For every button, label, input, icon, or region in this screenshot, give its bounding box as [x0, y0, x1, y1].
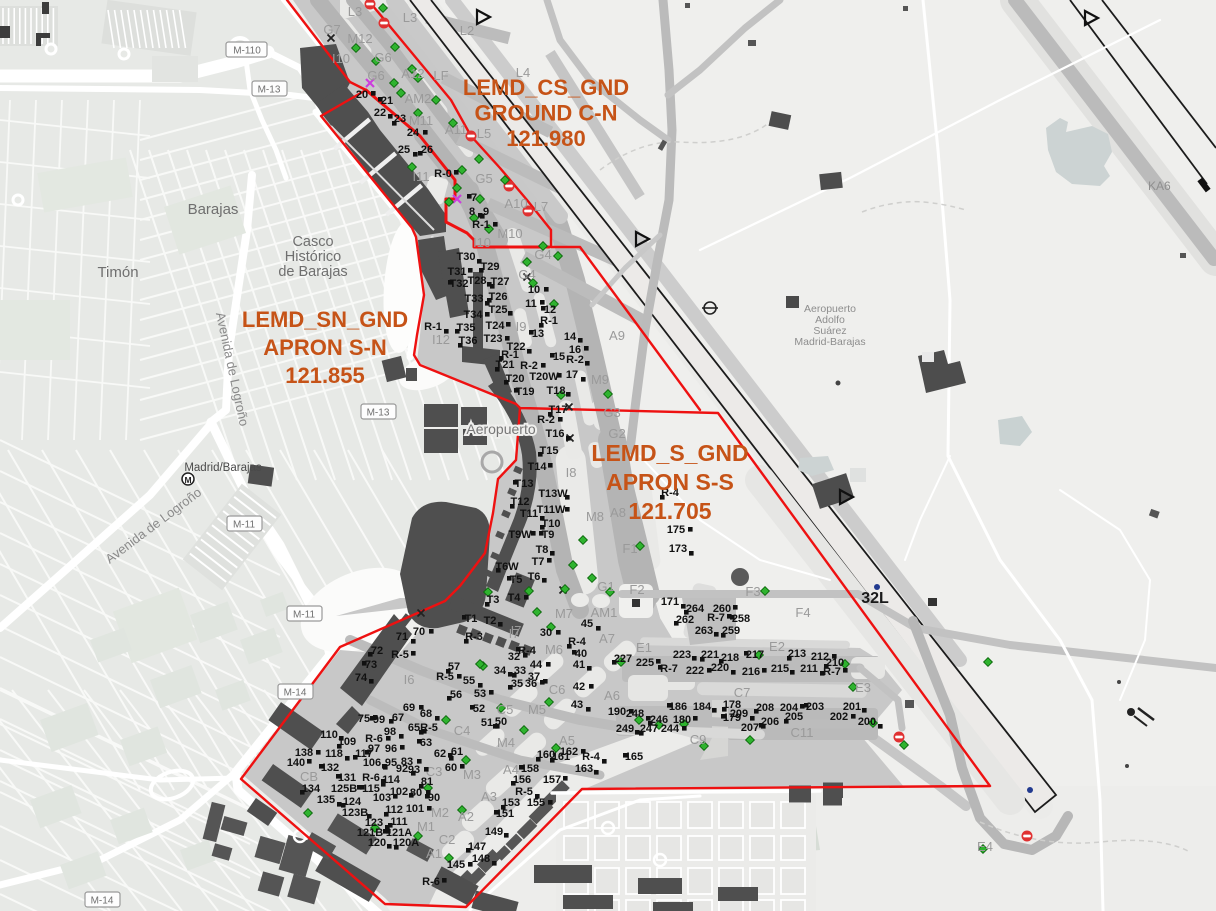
svg-text:155: 155 — [527, 797, 545, 809]
svg-text:M-11: M-11 — [293, 610, 315, 621]
svg-text:C11: C11 — [791, 725, 814, 740]
svg-text:T24: T24 — [486, 320, 506, 332]
svg-text:26: 26 — [421, 144, 433, 156]
svg-text:121.855: 121.855 — [285, 363, 365, 388]
svg-text:45: 45 — [581, 618, 593, 630]
svg-text:M8: M8 — [586, 509, 604, 524]
svg-text:A9: A9 — [609, 328, 625, 343]
svg-text:Aeropuerto: Aeropuerto — [466, 421, 535, 437]
svg-text:I10: I10 — [473, 235, 491, 250]
svg-text:T28: T28 — [468, 275, 487, 287]
svg-text:M: M — [184, 475, 191, 485]
svg-text:Histórico: Histórico — [285, 249, 341, 265]
svg-text:148: 148 — [472, 853, 490, 865]
svg-text:I7: I7 — [511, 623, 522, 638]
svg-text:13: 13 — [532, 328, 544, 340]
svg-text:65: 65 — [408, 722, 420, 734]
svg-text:G1: G1 — [597, 579, 614, 594]
svg-text:LF: LF — [433, 68, 448, 83]
svg-text:F1: F1 — [622, 541, 637, 556]
svg-text:R-1: R-1 — [424, 321, 442, 333]
svg-text:M6: M6 — [545, 642, 563, 657]
svg-text:106: 106 — [363, 757, 381, 769]
svg-text:10: 10 — [528, 284, 540, 296]
svg-text:55: 55 — [463, 675, 475, 687]
svg-text:A8: A8 — [610, 505, 626, 520]
svg-text:32L: 32L — [861, 590, 889, 607]
svg-text:121.705: 121.705 — [628, 498, 711, 524]
svg-text:121.980: 121.980 — [506, 126, 586, 151]
svg-text:R-2: R-2 — [537, 414, 555, 426]
svg-text:T9W: T9W — [508, 529, 532, 541]
svg-text:A12: A12 — [401, 66, 424, 81]
svg-text:M4: M4 — [497, 735, 515, 750]
svg-text:53: 53 — [474, 688, 486, 700]
svg-text:C5: C5 — [497, 702, 514, 717]
svg-text:149: 149 — [485, 826, 503, 838]
svg-text:62: 62 — [434, 748, 446, 760]
svg-text:63: 63 — [420, 737, 432, 749]
svg-text:L2: L2 — [460, 23, 474, 38]
svg-text:R-0: R-0 — [434, 168, 452, 180]
svg-text:T11: T11 — [520, 508, 538, 520]
svg-text:G7: G7 — [323, 22, 340, 37]
svg-text:R-5: R-5 — [391, 649, 409, 661]
svg-text:KA6: KA6 — [1148, 179, 1171, 193]
svg-text:101: 101 — [406, 803, 424, 815]
svg-text:T16: T16 — [546, 428, 565, 440]
svg-text:T34: T34 — [464, 309, 484, 321]
svg-text:202: 202 — [830, 711, 848, 723]
svg-text:C4: C4 — [454, 723, 471, 738]
svg-text:I8: I8 — [566, 465, 577, 480]
svg-text:APRON S-N: APRON S-N — [263, 335, 386, 360]
svg-text:M-110: M-110 — [233, 46, 261, 57]
svg-text:M2: M2 — [431, 805, 449, 820]
svg-text:Madrid-Barajas: Madrid-Barajas — [794, 336, 865, 348]
svg-text:44: 44 — [530, 659, 543, 671]
svg-text:A1: A1 — [426, 846, 442, 861]
svg-text:36: 36 — [525, 678, 537, 690]
svg-text:G2: G2 — [608, 426, 625, 441]
svg-text:263: 263 — [695, 625, 713, 637]
svg-text:T8: T8 — [536, 544, 549, 556]
svg-text:96: 96 — [385, 743, 397, 755]
svg-text:249: 249 — [616, 723, 634, 735]
svg-text:L3: L3 — [403, 10, 417, 25]
svg-text:C9: C9 — [690, 732, 707, 747]
svg-text:163: 163 — [575, 763, 593, 775]
svg-text:140: 140 — [287, 757, 305, 769]
svg-text:I6: I6 — [404, 672, 415, 687]
svg-text:T6: T6 — [528, 571, 541, 583]
svg-text:135: 135 — [317, 794, 335, 806]
svg-text:67: 67 — [392, 712, 404, 724]
svg-text:90: 90 — [428, 792, 440, 804]
svg-text:T4: T4 — [508, 592, 522, 604]
svg-text:R-6: R-6 — [422, 876, 440, 888]
svg-text:M-13: M-13 — [258, 85, 281, 96]
svg-text:209: 209 — [730, 708, 748, 720]
svg-text:A3: A3 — [481, 789, 497, 804]
svg-text:200: 200 — [858, 716, 876, 728]
svg-text:E3: E3 — [855, 680, 871, 695]
svg-text:215: 215 — [771, 663, 789, 675]
svg-text:73: 73 — [365, 659, 377, 671]
svg-text:157: 157 — [543, 774, 561, 786]
svg-text:51: 51 — [481, 717, 493, 729]
svg-text:225: 225 — [636, 657, 654, 669]
svg-text:de Barajas: de Barajas — [278, 264, 347, 280]
svg-text:61: 61 — [451, 746, 463, 758]
svg-text:C6: C6 — [549, 682, 566, 697]
svg-text:M10: M10 — [497, 226, 522, 241]
svg-text:G4: G4 — [518, 267, 535, 282]
svg-text:120: 120 — [368, 837, 386, 849]
svg-text:E1: E1 — [636, 640, 652, 655]
svg-text:52: 52 — [473, 703, 485, 715]
svg-text:71: 71 — [396, 631, 408, 643]
svg-text:68: 68 — [420, 708, 432, 720]
svg-text:11: 11 — [525, 298, 537, 310]
svg-text:98: 98 — [384, 726, 396, 738]
svg-text:211: 211 — [800, 663, 818, 675]
svg-text:171: 171 — [661, 596, 679, 608]
svg-text:190: 190 — [608, 706, 626, 718]
svg-text:R-5: R-5 — [515, 786, 533, 798]
svg-text:T14: T14 — [528, 461, 548, 473]
svg-text:T13W: T13W — [538, 488, 568, 500]
svg-text:24: 24 — [407, 127, 420, 139]
svg-text:80: 80 — [410, 787, 422, 799]
svg-text:M-14: M-14 — [91, 896, 114, 907]
svg-text:248: 248 — [626, 708, 644, 720]
svg-text:T30: T30 — [457, 251, 476, 263]
svg-text:T33: T33 — [465, 293, 484, 305]
svg-text:42: 42 — [573, 681, 585, 693]
svg-text:56: 56 — [450, 689, 462, 701]
svg-text:34: 34 — [494, 665, 507, 677]
svg-text:T25: T25 — [489, 304, 508, 316]
svg-text:Casco: Casco — [292, 234, 333, 250]
svg-text:F2: F2 — [629, 582, 644, 597]
svg-text:I9: I9 — [516, 319, 527, 334]
svg-text:T11W: T11W — [537, 504, 566, 516]
svg-text:60: 60 — [445, 762, 457, 774]
svg-text:R-2: R-2 — [566, 354, 584, 366]
svg-text:17: 17 — [566, 369, 578, 381]
svg-text:AM2: AM2 — [405, 91, 432, 106]
svg-text:15: 15 — [553, 351, 565, 363]
svg-text:AM1: AM1 — [591, 605, 618, 620]
svg-text:69: 69 — [403, 702, 415, 714]
svg-text:L7: L7 — [534, 199, 548, 214]
svg-text:14: 14 — [564, 331, 577, 343]
svg-text:E4: E4 — [977, 839, 993, 854]
svg-text:G4: G4 — [534, 247, 551, 262]
svg-text:A7: A7 — [599, 631, 615, 646]
svg-text:APRON S-S: APRON S-S — [606, 469, 734, 495]
svg-text:102: 102 — [390, 786, 408, 798]
svg-text:LEMD_S_GND: LEMD_S_GND — [591, 440, 748, 466]
svg-text:M9: M9 — [591, 372, 609, 387]
svg-text:I10: I10 — [332, 51, 350, 66]
svg-text:173: 173 — [669, 543, 687, 555]
svg-text:92: 92 — [396, 763, 408, 775]
svg-text:35: 35 — [511, 678, 523, 690]
svg-text:T20W: T20W — [529, 371, 559, 383]
svg-text:R-7: R-7 — [823, 666, 841, 678]
svg-text:30: 30 — [540, 627, 552, 639]
svg-text:LEMD_SN_GND: LEMD_SN_GND — [242, 307, 408, 332]
svg-text:103: 103 — [373, 792, 391, 804]
svg-text:M7: M7 — [555, 606, 573, 621]
svg-text:M12: M12 — [347, 31, 372, 46]
svg-text:43: 43 — [571, 699, 583, 711]
svg-text:E2: E2 — [769, 639, 785, 654]
svg-text:R-4: R-4 — [582, 751, 601, 763]
svg-text:75: 75 — [358, 713, 370, 725]
svg-text:R-7: R-7 — [707, 612, 725, 624]
svg-text:I11: I11 — [412, 169, 429, 184]
svg-text:G6: G6 — [367, 68, 384, 83]
svg-text:216: 216 — [742, 666, 760, 678]
svg-text:70: 70 — [413, 626, 425, 638]
svg-text:Madrid/Barajas: Madrid/Barajas — [184, 462, 262, 474]
svg-text:A2: A2 — [458, 809, 474, 824]
svg-text:A10: A10 — [504, 196, 527, 211]
svg-text:M3: M3 — [463, 767, 481, 782]
svg-text:8: 8 — [469, 206, 475, 218]
svg-text:CB: CB — [300, 769, 318, 784]
svg-text:F3: F3 — [745, 584, 760, 599]
svg-text:R-7: R-7 — [660, 663, 678, 675]
svg-text:222: 222 — [686, 665, 704, 677]
svg-text:T31: T31 — [448, 266, 467, 278]
svg-text:GROUND C-N: GROUND C-N — [475, 101, 618, 126]
svg-text:A11: A11 — [445, 122, 467, 137]
svg-text:T7: T7 — [532, 556, 545, 568]
svg-text:M5: M5 — [528, 702, 546, 717]
svg-text:T2: T2 — [484, 615, 497, 627]
svg-text:G5: G5 — [475, 171, 492, 186]
svg-text:7: 7 — [471, 192, 477, 204]
svg-text:207: 207 — [741, 722, 759, 734]
svg-text:G3: G3 — [603, 405, 620, 420]
svg-text:C2: C2 — [439, 832, 456, 847]
svg-text:Barajas: Barajas — [188, 201, 239, 218]
svg-text:L5: L5 — [477, 126, 491, 141]
svg-text:R-5: R-5 — [436, 671, 454, 683]
svg-text:22: 22 — [374, 107, 386, 119]
svg-text:G6: G6 — [374, 50, 391, 65]
svg-text:74: 74 — [355, 672, 368, 684]
svg-text:175: 175 — [667, 524, 685, 536]
svg-text:M-14: M-14 — [284, 688, 307, 699]
svg-text:T18: T18 — [547, 385, 566, 397]
svg-text:LEMD_CS_GND: LEMD_CS_GND — [463, 75, 629, 100]
svg-text:F4: F4 — [795, 605, 810, 620]
svg-text:21: 21 — [381, 95, 393, 107]
svg-text:M-11: M-11 — [233, 520, 255, 531]
svg-text:184: 184 — [693, 701, 712, 713]
svg-text:25: 25 — [398, 144, 410, 156]
svg-text:223: 223 — [673, 649, 691, 661]
svg-text:244: 244 — [661, 723, 680, 735]
svg-text:M-13: M-13 — [367, 408, 390, 419]
svg-text:I12: I12 — [432, 332, 450, 347]
svg-text:Timón: Timón — [97, 264, 138, 281]
svg-text:72: 72 — [371, 645, 383, 657]
svg-text:118: 118 — [325, 748, 343, 760]
svg-text:R-1: R-1 — [472, 219, 490, 231]
svg-text:A6: A6 — [604, 688, 620, 703]
svg-text:M1: M1 — [417, 819, 435, 834]
svg-text:R-4: R-4 — [518, 645, 537, 657]
svg-text:T23: T23 — [484, 333, 503, 345]
svg-text:20: 20 — [356, 89, 368, 101]
svg-text:145: 145 — [447, 859, 465, 871]
svg-text:110: 110 — [320, 729, 338, 741]
svg-text:M11: M11 — [409, 113, 433, 128]
svg-text:C7: C7 — [734, 685, 751, 700]
svg-text:41: 41 — [573, 659, 585, 671]
svg-text:L3: L3 — [348, 4, 362, 19]
svg-text:99: 99 — [373, 714, 385, 726]
